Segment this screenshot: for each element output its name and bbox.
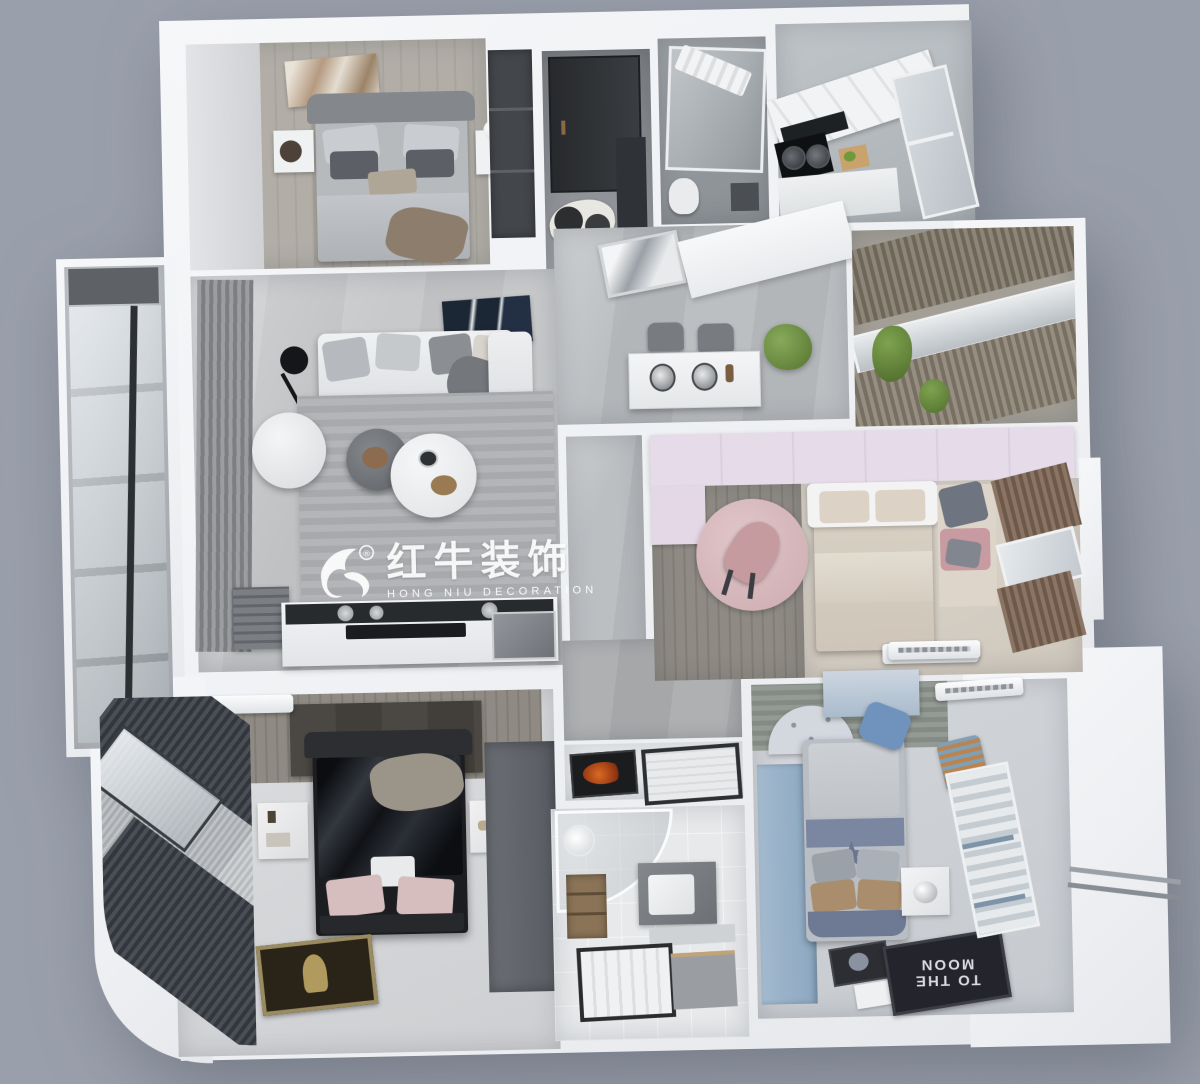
master-headboard — [304, 729, 473, 759]
flame-art — [582, 761, 624, 786]
bedroom2-bed — [315, 97, 470, 262]
sofa-cushion-1 — [321, 336, 371, 383]
moon-rug-text: TO THE MOON — [889, 939, 1004, 1005]
pink-window-seat — [937, 484, 998, 607]
pink-bed-pillow-1 — [819, 490, 870, 523]
pink-dresser — [651, 486, 706, 545]
bottle — [725, 364, 733, 382]
master-pillow-pink-2 — [396, 876, 454, 918]
boys-bed — [802, 738, 908, 942]
shower-floor-tray — [576, 943, 676, 1022]
girls-bedroom — [650, 426, 1083, 681]
island-cooktop — [346, 623, 466, 640]
balcony — [64, 265, 174, 749]
master-bed-base — [320, 913, 464, 934]
boys-window-rail-2 — [974, 893, 1026, 908]
bedroom2-cushion-center — [367, 168, 417, 196]
ac2-vent — [945, 684, 1013, 694]
master-floor-art — [256, 934, 379, 1016]
greens — [843, 150, 857, 162]
wardrobe-shelf-line2 — [490, 169, 534, 173]
coffee-machine-1 — [649, 363, 676, 392]
master-bed — [312, 735, 468, 936]
seat-pillow-gray-2 — [945, 538, 983, 569]
shower-tray — [641, 743, 743, 806]
boys-bedroom: TO THE MOON — [751, 678, 1074, 1019]
boys-bed-top — [808, 742, 900, 818]
dining-mirror — [598, 230, 687, 299]
ac1-vent — [898, 646, 970, 653]
bath2-shelf — [566, 874, 607, 939]
floor-lamp-shade — [280, 346, 309, 375]
moon-blob — [847, 951, 870, 972]
boys-ac-unit-1 — [888, 640, 980, 660]
dining-plant — [764, 324, 813, 371]
bath1-fixture — [731, 183, 760, 212]
pink-bed-pillow-2 — [875, 489, 926, 522]
cutting-board — [838, 144, 870, 171]
pot-1 — [779, 144, 808, 173]
flame-doormat — [569, 750, 638, 799]
dark-table-dish — [362, 446, 388, 469]
bath2-step — [671, 950, 738, 1009]
boys-storage-cube — [901, 867, 950, 916]
bedroom2-headboard — [307, 91, 476, 125]
floorplan: TO THE MOON ® 红牛装饰 HONG NIU DECORATION — [0, 0, 1200, 1084]
boys-pillow-brown-2 — [857, 879, 903, 912]
master-nightstand-left — [257, 802, 308, 859]
kitchen — [775, 20, 975, 224]
bedroom2-nightstand-left — [273, 130, 314, 173]
door-handle — [561, 121, 565, 135]
dining-table — [628, 351, 761, 410]
floor-art-figure — [301, 953, 329, 993]
shelf-line-2 — [567, 912, 607, 916]
pot-2 — [804, 142, 833, 171]
boys-window — [945, 761, 1040, 938]
boys-pillow-gray-2 — [856, 849, 900, 882]
brand-name-chinese: 红牛装饰 — [386, 539, 597, 583]
coffee-machine-2 — [691, 363, 718, 392]
dining-chair-1 — [647, 322, 684, 351]
bathroom-bottom — [551, 805, 750, 1041]
pink-bed — [813, 485, 934, 651]
dining-area — [553, 223, 849, 425]
nightstand-books — [266, 833, 290, 847]
master-wardrobe — [484, 741, 559, 992]
pink-chair-leg-1 — [721, 569, 733, 595]
watermark-text-column: 红牛装饰 HONG NIU DECORATION — [386, 539, 598, 600]
bathroom-top — [658, 36, 770, 224]
boys-bed-band — [806, 818, 905, 848]
shelf-line-1 — [566, 892, 606, 896]
moon-rug: TO THE MOON — [882, 928, 1012, 1016]
closet-corridor — [852, 226, 1078, 427]
nightstand-bottle — [268, 811, 276, 823]
pink-bed-duvet-fold — [814, 551, 933, 603]
brand-name-english: HONG NIU DECORATION — [387, 585, 598, 600]
master-pillow-pink-1 — [325, 874, 385, 919]
balcony-glazing — [69, 305, 170, 743]
white-table-flowers — [431, 475, 457, 496]
boys-window-rail — [962, 835, 1014, 850]
white-table-cup — [418, 449, 438, 467]
seat-pillow-gray-1 — [937, 480, 989, 529]
dining-chair-2 — [697, 323, 734, 352]
second-bedroom — [186, 38, 491, 270]
boys-bed-footband — [808, 910, 907, 938]
kitchen-window — [890, 64, 980, 219]
kitchen-window-bar — [908, 131, 954, 145]
registered-mark: ® — [363, 548, 370, 558]
bedroom2-tray — [280, 140, 302, 162]
watermark: ® 红牛装饰 HONG NIU DECORATION — [318, 522, 600, 618]
vanity-basin — [648, 874, 695, 915]
wall-window-sill-wing — [1078, 458, 1103, 620]
island-appliance — [491, 611, 556, 660]
cube-silver-deco — [913, 881, 937, 903]
bedroom2-wardrobe — [488, 49, 536, 238]
vanity-counter — [638, 862, 717, 926]
wardrobe-shelf-line — [489, 107, 533, 111]
bath1-toilet — [668, 178, 699, 215]
hongniu-bull-logo-icon: ® — [318, 541, 377, 604]
balcony-top-panel — [68, 267, 159, 305]
boys-pillow-brown-1 — [810, 879, 857, 914]
bath-corridor — [564, 741, 743, 801]
sofa-cushion-2 — [375, 333, 421, 372]
render-canvas: { "scene": { "description": "Top-down 3D… — [0, 0, 1200, 1072]
bedroom2-wall-shade — [186, 43, 265, 271]
